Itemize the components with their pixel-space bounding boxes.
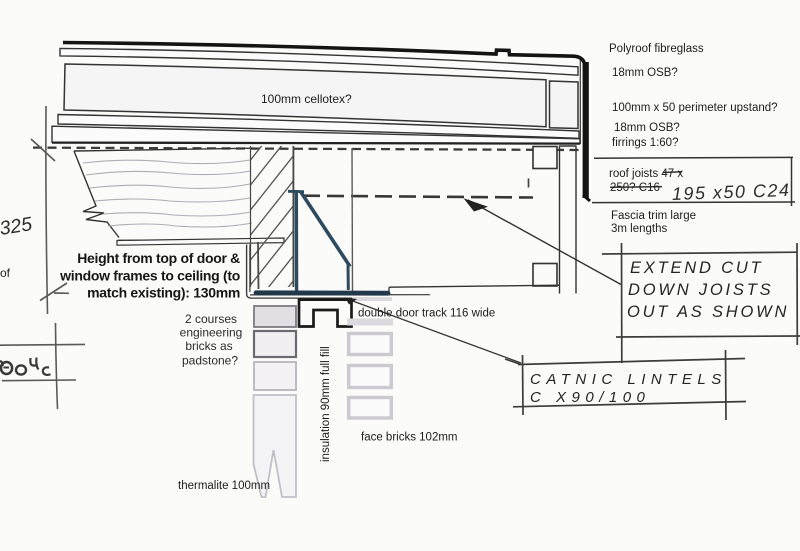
svg-text:EXTEND CUT: EXTEND CUT (630, 259, 763, 277)
svg-text:Polyroof fibreglass: Polyroof fibreglass (609, 43, 704, 55)
svg-text:195 x50 C24: 195 x50 C24 (672, 180, 791, 204)
svg-text:3m lengths: 3m lengths (611, 223, 668, 235)
svg-text:Fascia trim large: Fascia trim large (611, 210, 696, 222)
svg-text:roof joists 47 x: roof joists 47 x (609, 168, 683, 180)
svg-text:face bricks 102mm: face bricks 102mm (361, 432, 458, 444)
svg-text:firrings 1:60?: firrings 1:60? (612, 137, 678, 149)
svg-text:100mm cellotex?: 100mm cellotex? (261, 92, 352, 106)
svg-text:C X90/100: C X90/100 (530, 389, 650, 406)
svg-text:window frames to ceiling (to: window frames to ceiling (to (59, 268, 240, 284)
svg-text:325: 325 (0, 213, 34, 240)
svg-text:double door track 116 wide: double door track 116 wide (358, 308, 495, 320)
svg-text:OUT AS SHOWN: OUT AS SHOWN (627, 303, 789, 321)
svg-text:bricks as: bricks as (185, 339, 232, 353)
svg-text:Height from top of door &: Height from top of door & (77, 250, 240, 266)
svg-text:18mm OSB?: 18mm OSB? (612, 67, 678, 79)
svg-text:DOWN JOISTS: DOWN JOISTS (628, 281, 773, 299)
svg-text:insulation 90mm full fill: insulation 90mm full fill (320, 346, 332, 462)
svg-text:CATNIC LINTELS: CATNIC LINTELS (530, 371, 727, 388)
svg-text:padstone?: padstone? (182, 354, 238, 368)
svg-text:thermalite 100mm: thermalite 100mm (178, 480, 270, 492)
svg-text:250? C16: 250? C16 (610, 182, 660, 194)
svg-text:match existing): 130mm: match existing): 130mm (87, 285, 240, 301)
svg-text:of: of (0, 266, 11, 280)
svg-text:2 courses: 2 courses (185, 312, 237, 326)
svg-text:100mm x 50 perimeter upstand?: 100mm x 50 perimeter upstand? (612, 102, 778, 114)
svg-text:18mm OSB?: 18mm OSB? (614, 122, 680, 134)
svg-text:engineering: engineering (180, 326, 243, 340)
